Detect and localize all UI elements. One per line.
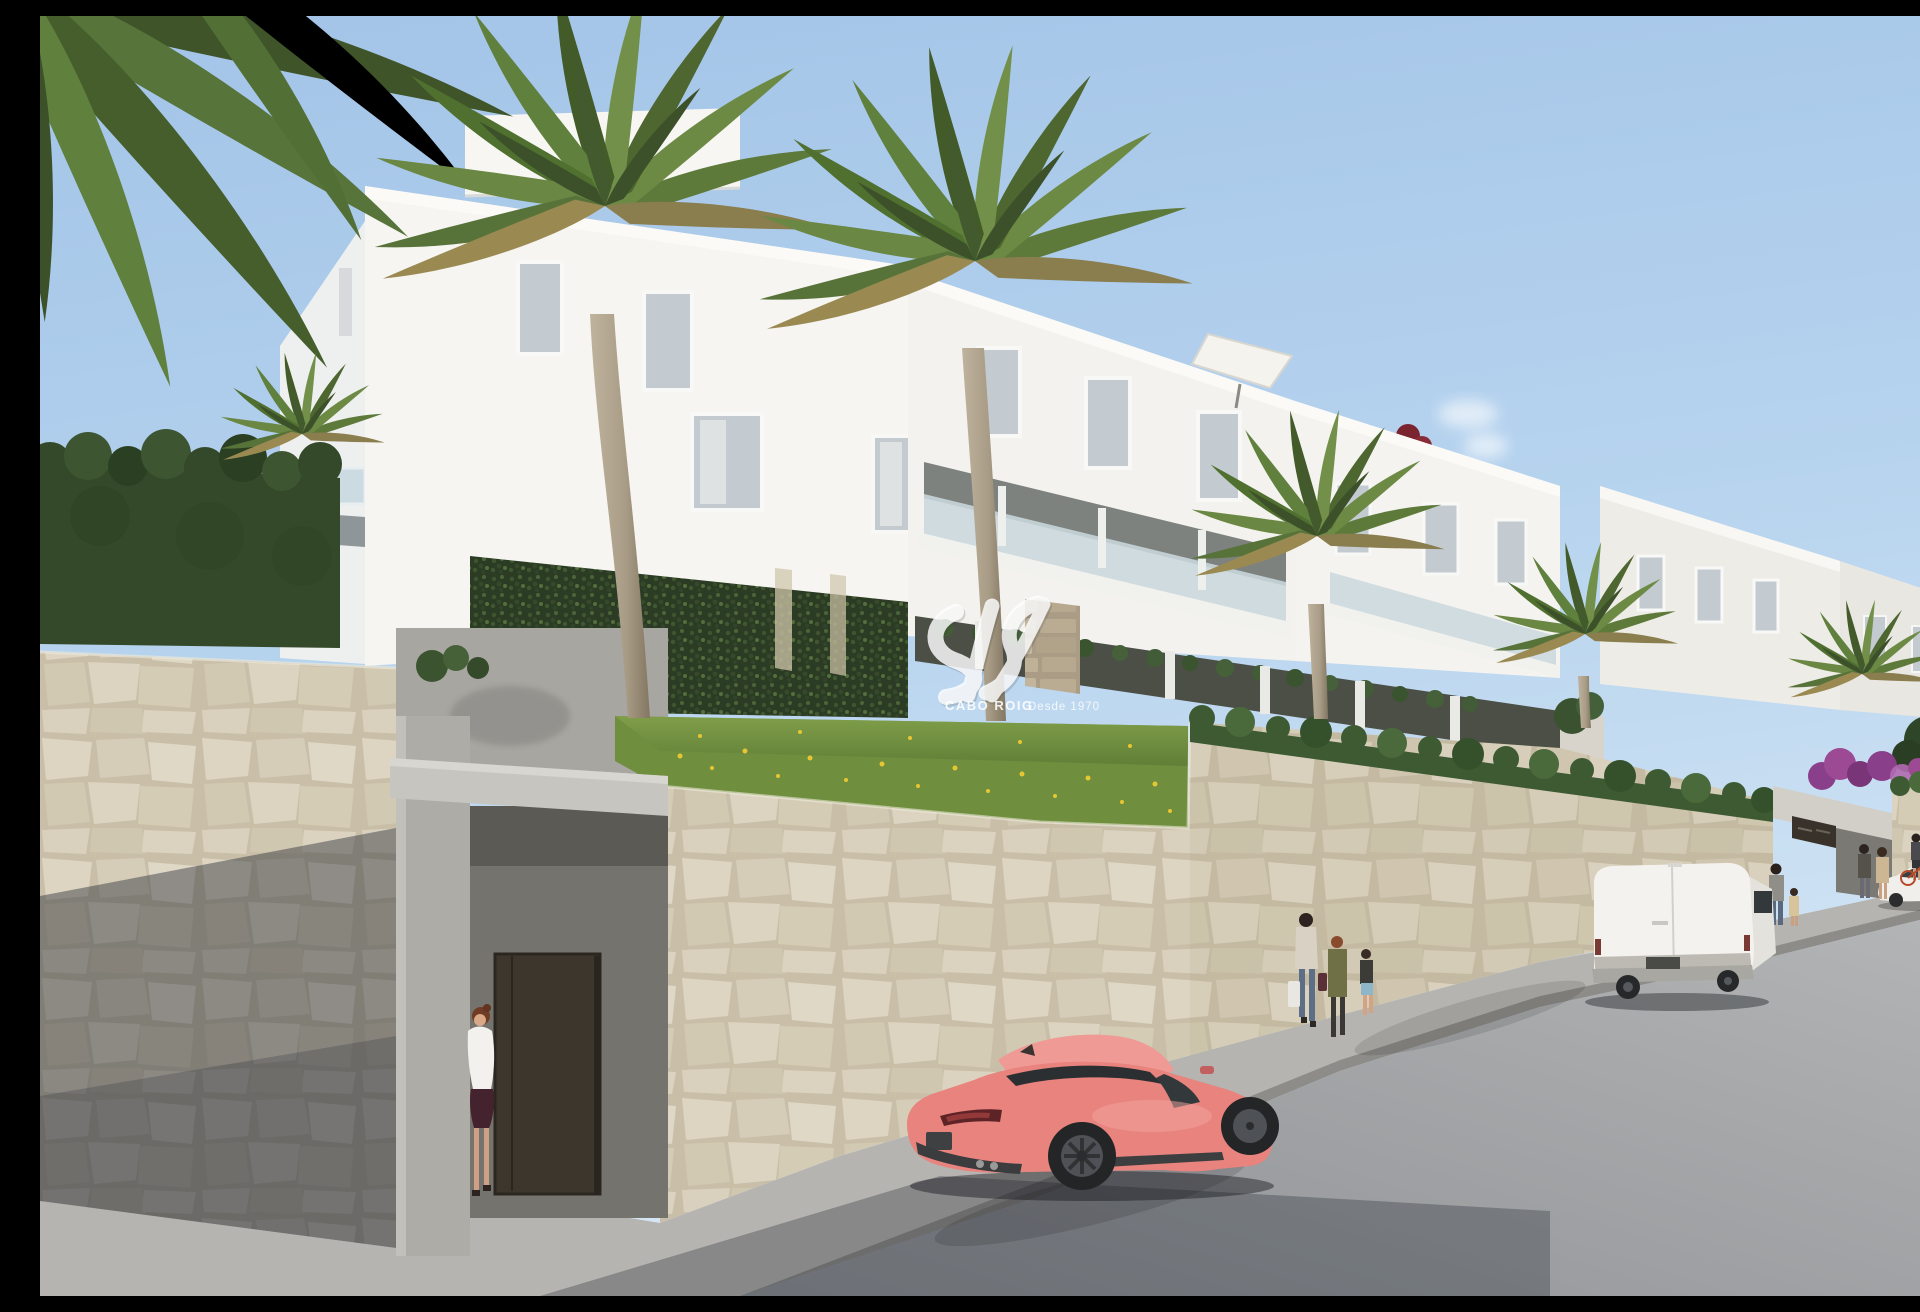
shoulder-bag: [1318, 973, 1327, 991]
pillar: [1198, 530, 1206, 590]
blouse: [468, 1027, 494, 1090]
van-plate: [1646, 957, 1680, 969]
car-mirror: [1200, 1066, 1214, 1074]
pedestrian-entrance: [390, 716, 668, 1256]
van-window: [1754, 891, 1772, 913]
render-canvas: CABO ROIG Desde 1970: [40, 16, 1920, 1296]
pillar: [1098, 508, 1106, 568]
wall-strip: [830, 574, 846, 676]
architectural-render: CABO ROIG Desde 1970: [40, 16, 1920, 1296]
entrance-gate-door[interactable]: [495, 954, 600, 1194]
watermark-brand: CABO ROIG: [945, 698, 1034, 713]
skirt: [470, 1089, 494, 1128]
wall-strip: [775, 568, 792, 671]
shopping-bag: [1288, 981, 1300, 1007]
window: [339, 268, 352, 336]
watermark-tagline: Desde 1970: [1028, 701, 1100, 713]
car-plate: [926, 1132, 952, 1150]
left-hedge: [40, 429, 342, 648]
left-boundary-wall: [40, 652, 396, 1248]
pillar: [998, 486, 1006, 546]
